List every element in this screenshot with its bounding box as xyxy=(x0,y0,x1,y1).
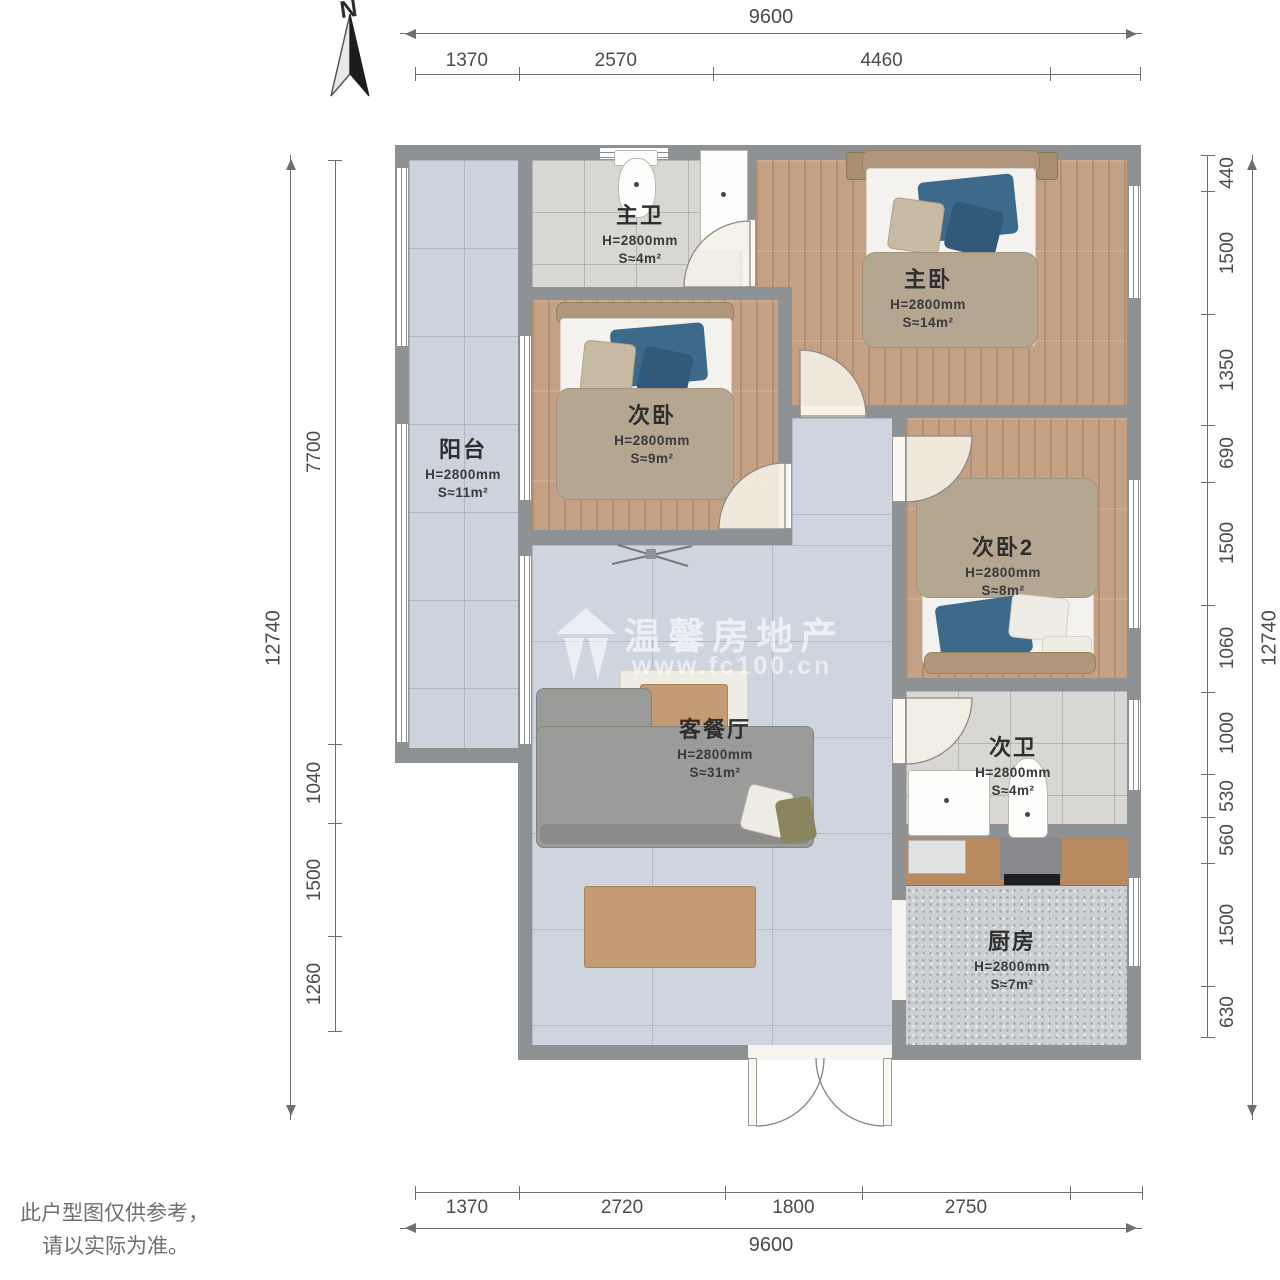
room-area: S≈11m² xyxy=(383,485,543,500)
room-name: 厨房 xyxy=(922,924,1102,956)
room-area: S≈4m² xyxy=(923,783,1103,798)
room-area: S≈31m² xyxy=(625,765,805,780)
room-label-bedroom-3: 次卧2 H=2800mm S≈8m² xyxy=(913,530,1093,598)
room-area: S≈8m² xyxy=(913,583,1093,598)
room-label-balcony: 阳台 H=2800mm S≈11m² xyxy=(383,432,543,500)
room-name: 客餐厅 xyxy=(625,712,805,744)
door-arc-bedroom-2 xyxy=(719,463,785,529)
room-label-kitchen: 厨房 H=2800mm S≈7m² xyxy=(922,924,1102,992)
room-name: 主卫 xyxy=(555,198,725,230)
room-height: H=2800mm xyxy=(625,747,805,762)
floor-plan-page: { "compass": { "label": "N" }, "watermar… xyxy=(0,0,1280,1280)
room-height: H=2800mm xyxy=(913,565,1093,580)
watermark-house-icon xyxy=(556,608,616,682)
door-arc-bedroom-3 xyxy=(906,436,972,502)
watermark-url: www.fc100.cn xyxy=(632,652,832,681)
door-arc-master-bedroom xyxy=(800,350,866,416)
room-height: H=2800mm xyxy=(922,959,1102,974)
room-area: S≈14m² xyxy=(838,315,1018,330)
room-name: 次卫 xyxy=(923,730,1103,762)
disclaimer-line-1: 此户型图仅供参考， xyxy=(20,1198,250,1231)
room-height: H=2800mm xyxy=(555,233,725,248)
room-label-bedroom-2: 次卧 H=2800mm S≈9m² xyxy=(562,398,742,466)
room-height: H=2800mm xyxy=(923,765,1103,780)
room-name: 阳台 xyxy=(383,432,543,464)
entry-door-arc-left xyxy=(756,1058,824,1126)
entry-door-arc-right xyxy=(816,1058,884,1126)
room-height: H=2800mm xyxy=(838,297,1018,312)
room-label-second-bath: 次卫 H=2800mm S≈4m² xyxy=(923,730,1103,798)
disclaimer: 此户型图仅供参考， 请以实际为准。 xyxy=(20,1198,250,1263)
room-name: 次卧 xyxy=(562,398,742,430)
room-height: H=2800mm xyxy=(562,433,742,448)
room-area: S≈9m² xyxy=(562,451,742,466)
disclaimer-line-2: 请以实际为准。 xyxy=(20,1231,250,1264)
room-name: 主卧 xyxy=(838,262,1018,294)
room-name: 次卧2 xyxy=(913,530,1093,562)
room-label-master-bedroom: 主卧 H=2800mm S≈14m² xyxy=(838,262,1018,330)
room-area: S≈7m² xyxy=(922,977,1102,992)
room-label-living-dining: 客餐厅 H=2800mm S≈31m² xyxy=(625,712,805,780)
room-height: H=2800mm xyxy=(383,467,543,482)
room-label-master-bath: 主卫 H=2800mm S≈4m² xyxy=(555,198,725,266)
room-area: S≈4m² xyxy=(555,251,725,266)
